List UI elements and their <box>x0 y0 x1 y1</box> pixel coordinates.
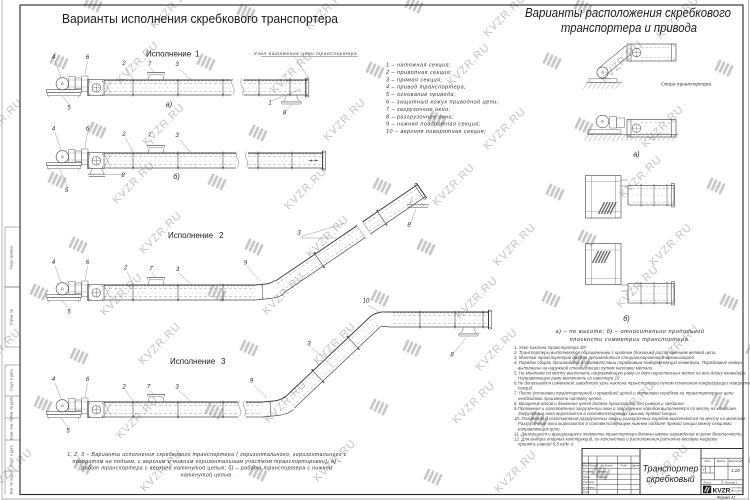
svg-text:Иванов: Иванов <box>598 469 607 473</box>
svg-text:транспортера и привода: транспортера и привода <box>561 20 697 35</box>
svg-text:1:20: 1:20 <box>731 468 740 473</box>
svg-text:Подп. и дата: Подп. и дата <box>10 369 14 390</box>
svg-text:Инв. № подл.: Инв. № подл. <box>10 472 14 494</box>
svg-text:Изм.: Изм. <box>582 464 588 468</box>
svg-text:натянутой цепью.: натянутой цепью. <box>181 471 234 478</box>
svg-text:Опора транспортера: Опора транспортера <box>661 82 711 88</box>
svg-text:Варианты расположения скребков: Варианты расположения скребкового <box>525 5 731 20</box>
svg-text:Подп.: Подп. <box>620 464 628 468</box>
svg-text:поворотом на подъем, с верхним: поворотом на подъем, с верхним и нижним … <box>72 459 341 465</box>
svg-text:принять равной 8,8 кг/м. п.: принять равной 8,8 кг/м. п. <box>518 442 575 447</box>
svg-text:скребковый: скребковый <box>646 474 694 484</box>
svg-text:Масштаб: Масштаб <box>729 459 743 463</box>
svg-text:KVZR: KVZR <box>713 488 731 495</box>
svg-text:Инв. № дубл.: Инв. № дубл. <box>10 396 14 418</box>
svg-text:Листов 1: Листов 1 <box>724 480 738 484</box>
svg-text:Формат А1: Формат А1 <box>717 495 736 499</box>
svg-text:плоскости симметрии транспорте: плоскости симметрии транспортера. <box>570 337 691 343</box>
svg-text:Н.контр.: Н.контр. <box>583 486 595 490</box>
svg-text:Пров.: Пров. <box>583 475 591 479</box>
svg-text:1: 1 <box>268 101 271 107</box>
svg-text:Перв. примен.: Перв. примен. <box>10 245 14 269</box>
svg-text:КОТЕЛЬНЫЙ: КОТЕЛЬНЫЙ <box>731 487 745 490</box>
svg-text:Исполнение: Исполнение <box>168 231 214 240</box>
svg-text:робот транспортера с верхней н: робот транспортера с верхней натянутой ц… <box>81 465 333 472</box>
svg-text:6.Не допускается изменение зав: 6.Не допускается изменение заводского уг… <box>514 381 750 386</box>
svg-text:2: 2 <box>123 266 128 272</box>
svg-text:3 – прямая секция;: 3 – прямая секция; <box>386 77 443 83</box>
svg-text:а): а) <box>166 100 172 109</box>
svg-text:Справ. №: Справ. № <box>10 309 14 325</box>
svg-text:6 – защитный кожух приводной: 6 – защитный кожух приводной цепи; <box>386 99 499 106</box>
svg-text:8 – разгрузочное окно;: 8 – разгрузочное окно; <box>386 114 454 120</box>
svg-text:Варианты исполнения скребковог: Варианты исполнения скребкового транспор… <box>62 11 339 26</box>
svg-text:4 – привод транспортера;: 4 – привод транспортера; <box>386 85 466 91</box>
svg-text:Лист: Лист <box>702 480 711 484</box>
svg-text:ЗАВОД КВЗР: ЗАВОД КВЗР <box>731 489 744 492</box>
svg-text:9 – нижняя поворотная секция;: 9 – нижняя поворотная секция; <box>386 122 481 128</box>
svg-text:а): а) <box>633 150 639 159</box>
svg-text:Взам. инв. №: Взам. инв. № <box>10 418 14 440</box>
svg-text:1 – натяжная секция;: 1 – натяжная секция; <box>386 63 451 69</box>
svg-text:2: 2 <box>219 231 224 240</box>
svg-text:2 – приводная секция;: 2 – приводная секция; <box>385 70 452 76</box>
svg-text:2: 2 <box>121 385 126 391</box>
svg-text:Лист: Лист <box>588 464 597 468</box>
svg-text:2: 2 <box>121 132 126 138</box>
svg-text:а) – по высоте; б) – относи: а) – по высоте; б) – относительно продол… <box>556 328 705 335</box>
svg-text:Т.контр.: Т.контр. <box>583 480 595 484</box>
svg-text:б): б) <box>623 314 629 323</box>
svg-text:Исполнение: Исполнение <box>170 357 216 366</box>
svg-text:Узел натяжения цепи транспорте: Узел натяжения цепи транспортера <box>254 51 357 56</box>
svg-text:3: 3 <box>221 357 226 366</box>
svg-text:1: 1 <box>195 50 200 59</box>
svg-text:10 – верхняя поворотная секци: 10 – верхняя поворотная секция; <box>386 129 486 135</box>
svg-text:б): б) <box>173 172 179 181</box>
svg-text:Исполнение: Исполнение <box>146 50 192 59</box>
svg-text:Разраб.: Разраб. <box>583 469 594 473</box>
svg-text:Петров: Петров <box>597 475 607 479</box>
svg-text:Транспортер: Транспортер <box>643 464 699 474</box>
svg-text:Утв.: Утв. <box>583 490 590 494</box>
svg-text:Дата: Дата <box>631 464 640 468</box>
svg-text:Масса: Масса <box>717 459 726 463</box>
svg-text:Лит.: Лит. <box>703 459 711 463</box>
svg-text:5 – основание привода;: 5 – основание привода; <box>386 92 456 98</box>
svg-text:7 – загрузочное окно;: 7 – загрузочное окно; <box>386 107 451 113</box>
svg-text:1, 2, 3 – Варианты исполнения: 1, 2, 3 – Варианты исполнения скребковог… <box>67 452 347 458</box>
svg-text:10: 10 <box>363 299 370 305</box>
svg-text:Подп. и дата: Подп. и дата <box>10 445 14 466</box>
svg-text:№ докум.: № докум. <box>601 464 614 468</box>
svg-text:2: 2 <box>121 61 126 67</box>
